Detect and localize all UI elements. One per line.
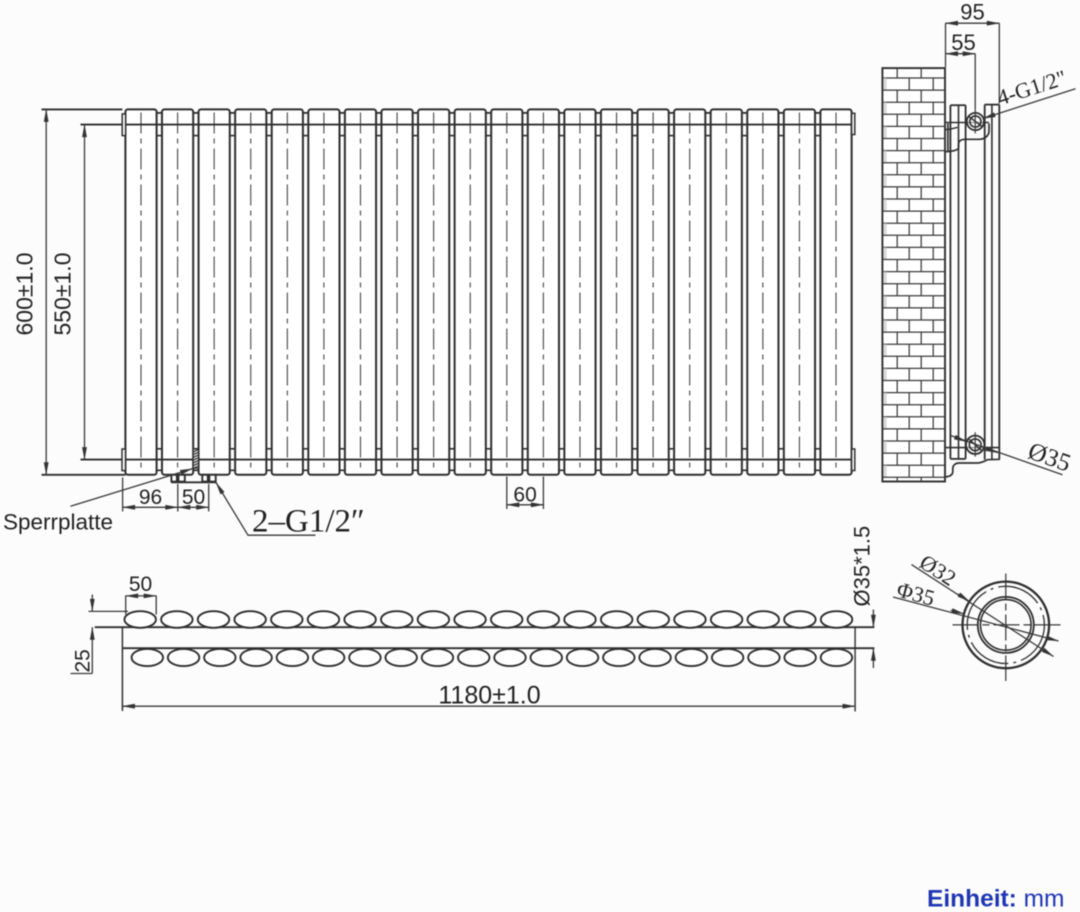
svg-text:60: 60	[513, 484, 536, 507]
svg-text:96: 96	[139, 486, 162, 509]
svg-text:550±1.0: 550±1.0	[50, 253, 76, 336]
svg-text:25: 25	[72, 649, 95, 672]
svg-text:Sperrplatte: Sperrplatte	[3, 510, 113, 535]
svg-text:Ø35*1.5: Ø35*1.5	[850, 526, 875, 607]
svg-text:50: 50	[129, 573, 152, 596]
svg-text:600±1.0: 600±1.0	[12, 253, 38, 336]
svg-text:1180±1.0: 1180±1.0	[438, 682, 540, 710]
svg-text:2–G1/2″: 2–G1/2″	[252, 504, 365, 540]
svg-text:50: 50	[182, 486, 205, 509]
svg-text:55: 55	[951, 30, 975, 55]
svg-text:Einheit: mm: Einheit: mm	[927, 886, 1064, 912]
svg-text:95: 95	[960, 0, 984, 25]
